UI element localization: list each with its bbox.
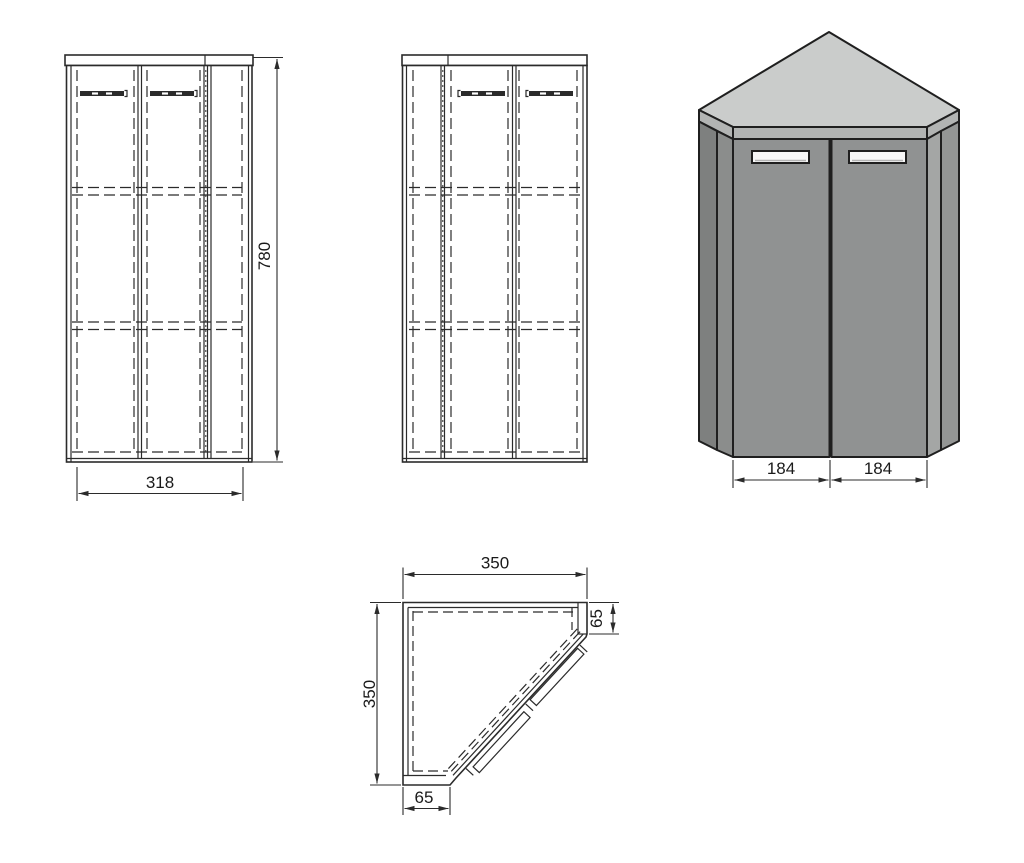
front-elevation-view: 780 318 bbox=[65, 55, 283, 501]
top-panel bbox=[65, 55, 253, 66]
left-door-dim-label: 184 bbox=[767, 459, 795, 478]
dimension-height: 780 bbox=[253, 58, 283, 463]
top-edge-band-front bbox=[733, 127, 927, 139]
door-handle bbox=[526, 91, 573, 97]
top-panel bbox=[402, 55, 587, 66]
door-handle bbox=[80, 91, 127, 97]
mirrored-elevation-view bbox=[402, 55, 587, 462]
right-side-panel bbox=[941, 122, 959, 451]
left-corner-stile bbox=[717, 131, 733, 457]
plan-view: 350 350 65 65 bbox=[360, 554, 619, 816]
technical-drawing-canvas: 780 318 bbox=[0, 0, 1024, 863]
right-door bbox=[832, 139, 928, 457]
cabinet-carcass bbox=[403, 66, 588, 463]
left-side-panel bbox=[699, 122, 717, 451]
left-door bbox=[733, 139, 830, 457]
door-handle bbox=[458, 91, 505, 97]
dimension-doors: 184 184 bbox=[733, 459, 927, 488]
dimension-plan-width: 350 bbox=[403, 554, 587, 600]
perspective-view: 184 184 bbox=[699, 32, 959, 488]
right-return-dim-label: 65 bbox=[587, 609, 606, 628]
dimension-bottom-return: 65 bbox=[403, 787, 450, 815]
dimension-plan-depth: 350 bbox=[360, 603, 401, 786]
cabinet-carcass bbox=[67, 66, 253, 463]
dimension-right-return: 65 bbox=[587, 603, 619, 635]
plan-outline bbox=[403, 603, 587, 786]
height-dim-label: 780 bbox=[255, 242, 274, 270]
door-handle bbox=[752, 151, 809, 163]
plan-width-dim-label: 350 bbox=[481, 554, 509, 573]
bottom-return-dim-label: 65 bbox=[415, 788, 434, 807]
right-door-dim-label: 184 bbox=[864, 459, 892, 478]
door-handle bbox=[150, 91, 197, 97]
plan-depth-dim-label: 350 bbox=[360, 680, 379, 708]
width-dim-label: 318 bbox=[146, 473, 174, 492]
door-handle bbox=[849, 151, 906, 163]
drawing-sheet: 780 318 bbox=[0, 0, 1024, 863]
right-corner-stile bbox=[927, 131, 941, 457]
top-surface bbox=[699, 32, 959, 127]
dimension-width: 318 bbox=[77, 467, 243, 501]
